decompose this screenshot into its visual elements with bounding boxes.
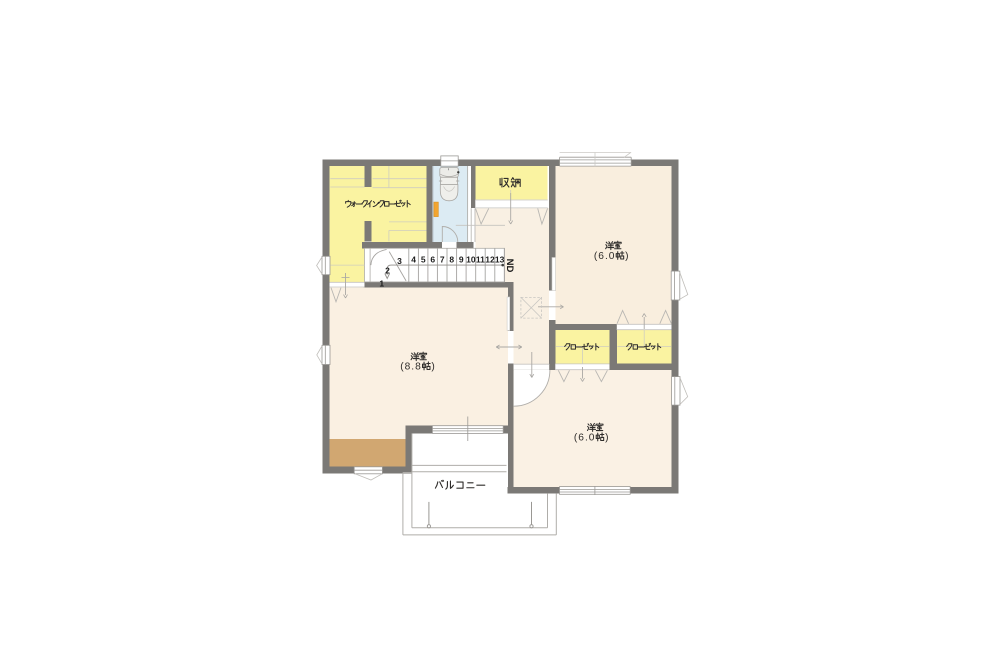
- svg-text:6: 6: [430, 255, 435, 265]
- svg-text:13: 13: [495, 255, 505, 265]
- svg-text:2: 2: [385, 266, 390, 276]
- svg-text:11: 11: [476, 255, 485, 265]
- svg-text:(8.8: (8.8: [400, 362, 422, 373]
- svg-text:8: 8: [449, 255, 454, 265]
- svg-text:7: 7: [440, 255, 445, 265]
- svg-text:5: 5: [421, 255, 426, 265]
- svg-text:10: 10: [466, 255, 476, 265]
- svg-text:9: 9: [459, 255, 464, 265]
- svg-text:1: 1: [379, 278, 384, 288]
- svg-text:): ): [625, 251, 628, 262]
- svg-text:ND: ND: [504, 259, 515, 273]
- svg-text:12: 12: [485, 255, 495, 265]
- svg-text:): ): [431, 362, 434, 373]
- svg-text:(6.0: (6.0: [594, 251, 616, 262]
- svg-text:4: 4: [411, 255, 416, 265]
- svg-text:(6.0: (6.0: [574, 433, 596, 444]
- svg-text:): ): [605, 433, 608, 444]
- svg-text:3: 3: [397, 256, 402, 266]
